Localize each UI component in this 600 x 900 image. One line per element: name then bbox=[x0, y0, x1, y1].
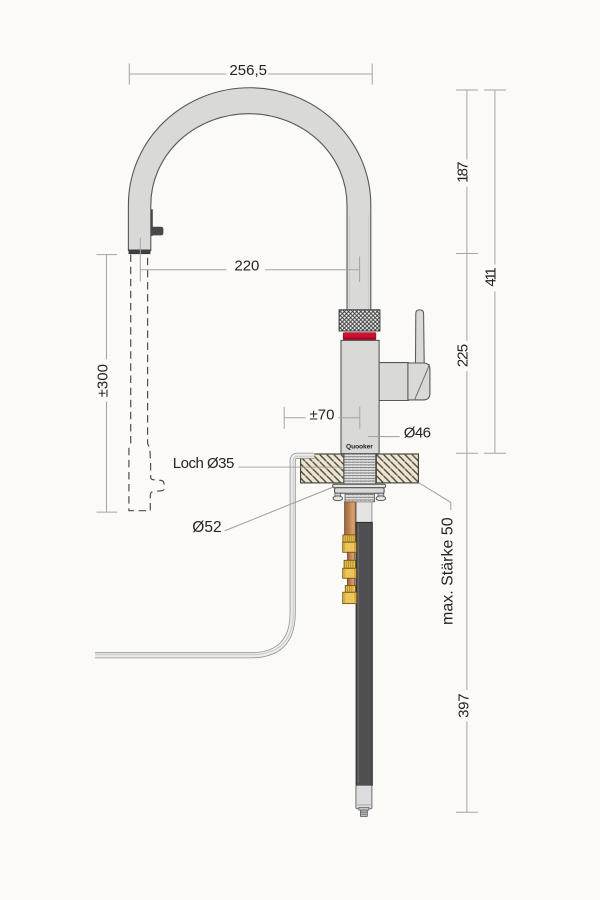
svg-text:Loch Ø35: Loch Ø35 bbox=[173, 455, 234, 472]
svg-text:256,5: 256,5 bbox=[229, 62, 267, 79]
svg-text:220: 220 bbox=[234, 258, 259, 275]
svg-text:187: 187 bbox=[454, 162, 471, 183]
svg-text:±70: ±70 bbox=[310, 406, 335, 423]
svg-text:225: 225 bbox=[454, 344, 471, 367]
svg-text:411: 411 bbox=[482, 267, 499, 286]
svg-text:Ø46: Ø46 bbox=[404, 425, 431, 442]
svg-text:Ø52: Ø52 bbox=[192, 519, 221, 536]
svg-text:max. Stärke 50: max. Stärke 50 bbox=[440, 517, 457, 625]
svg-text:397: 397 bbox=[455, 694, 472, 718]
svg-text:±300: ±300 bbox=[94, 364, 111, 397]
svg-text:Quooker: Quooker bbox=[346, 444, 373, 451]
